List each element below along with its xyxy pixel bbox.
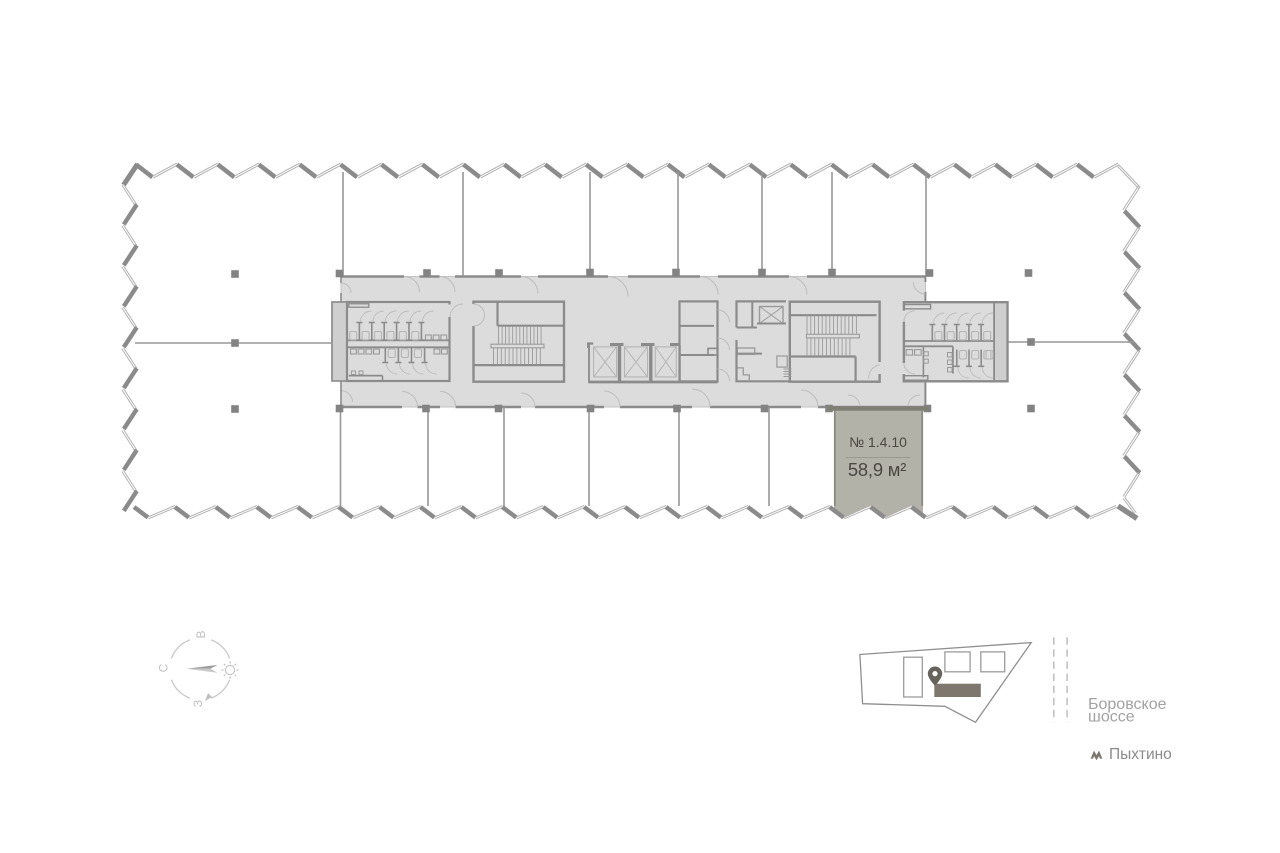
svg-text:С: С — [157, 663, 171, 672]
svg-text:58,9 м²: 58,9 м² — [848, 459, 906, 480]
svg-text:№ 1.4.10: № 1.4.10 — [849, 434, 907, 450]
svg-text:Боровскоешоссе: Боровскоешоссе — [1088, 696, 1167, 726]
svg-text:Пыхтино: Пыхтино — [1109, 746, 1172, 763]
svg-text:В: В — [194, 630, 208, 638]
svg-text:З: З — [191, 700, 205, 707]
